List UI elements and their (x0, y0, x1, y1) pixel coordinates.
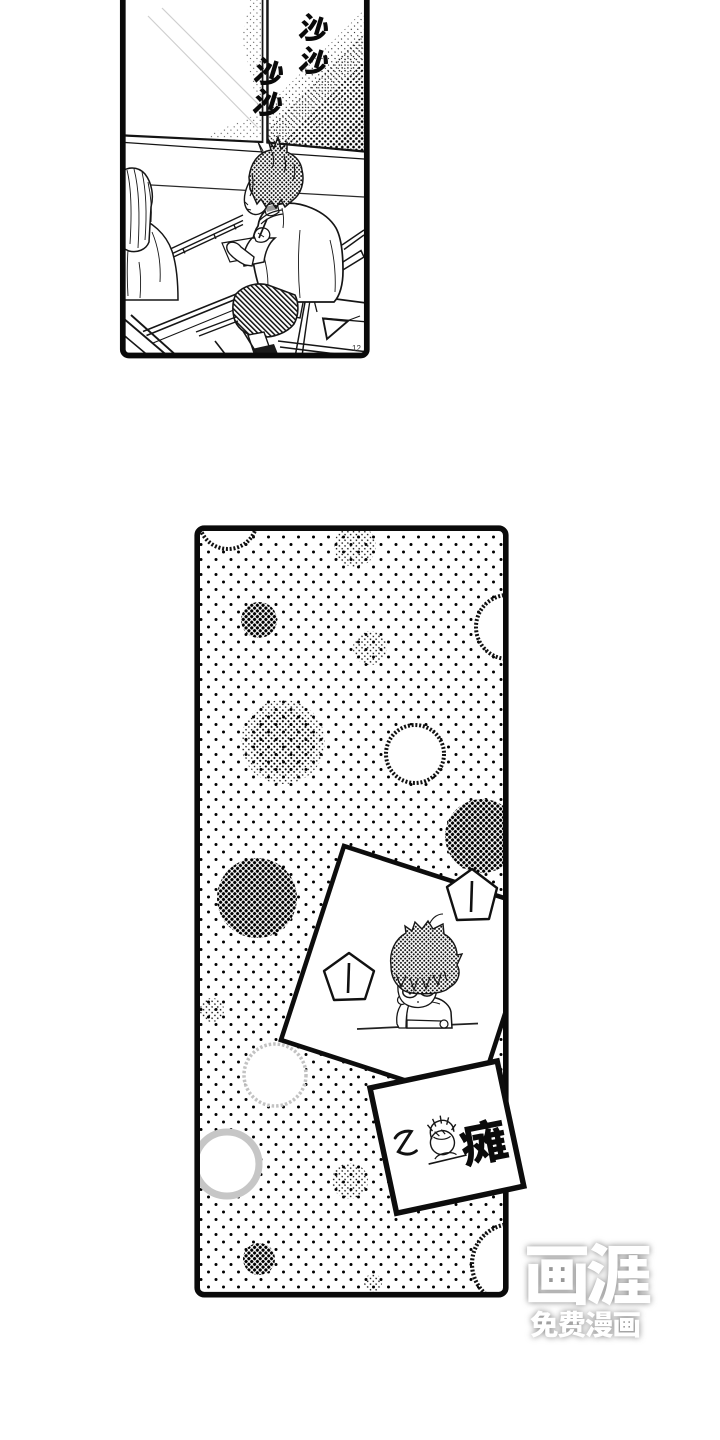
svg-text:12: 12 (352, 344, 361, 353)
